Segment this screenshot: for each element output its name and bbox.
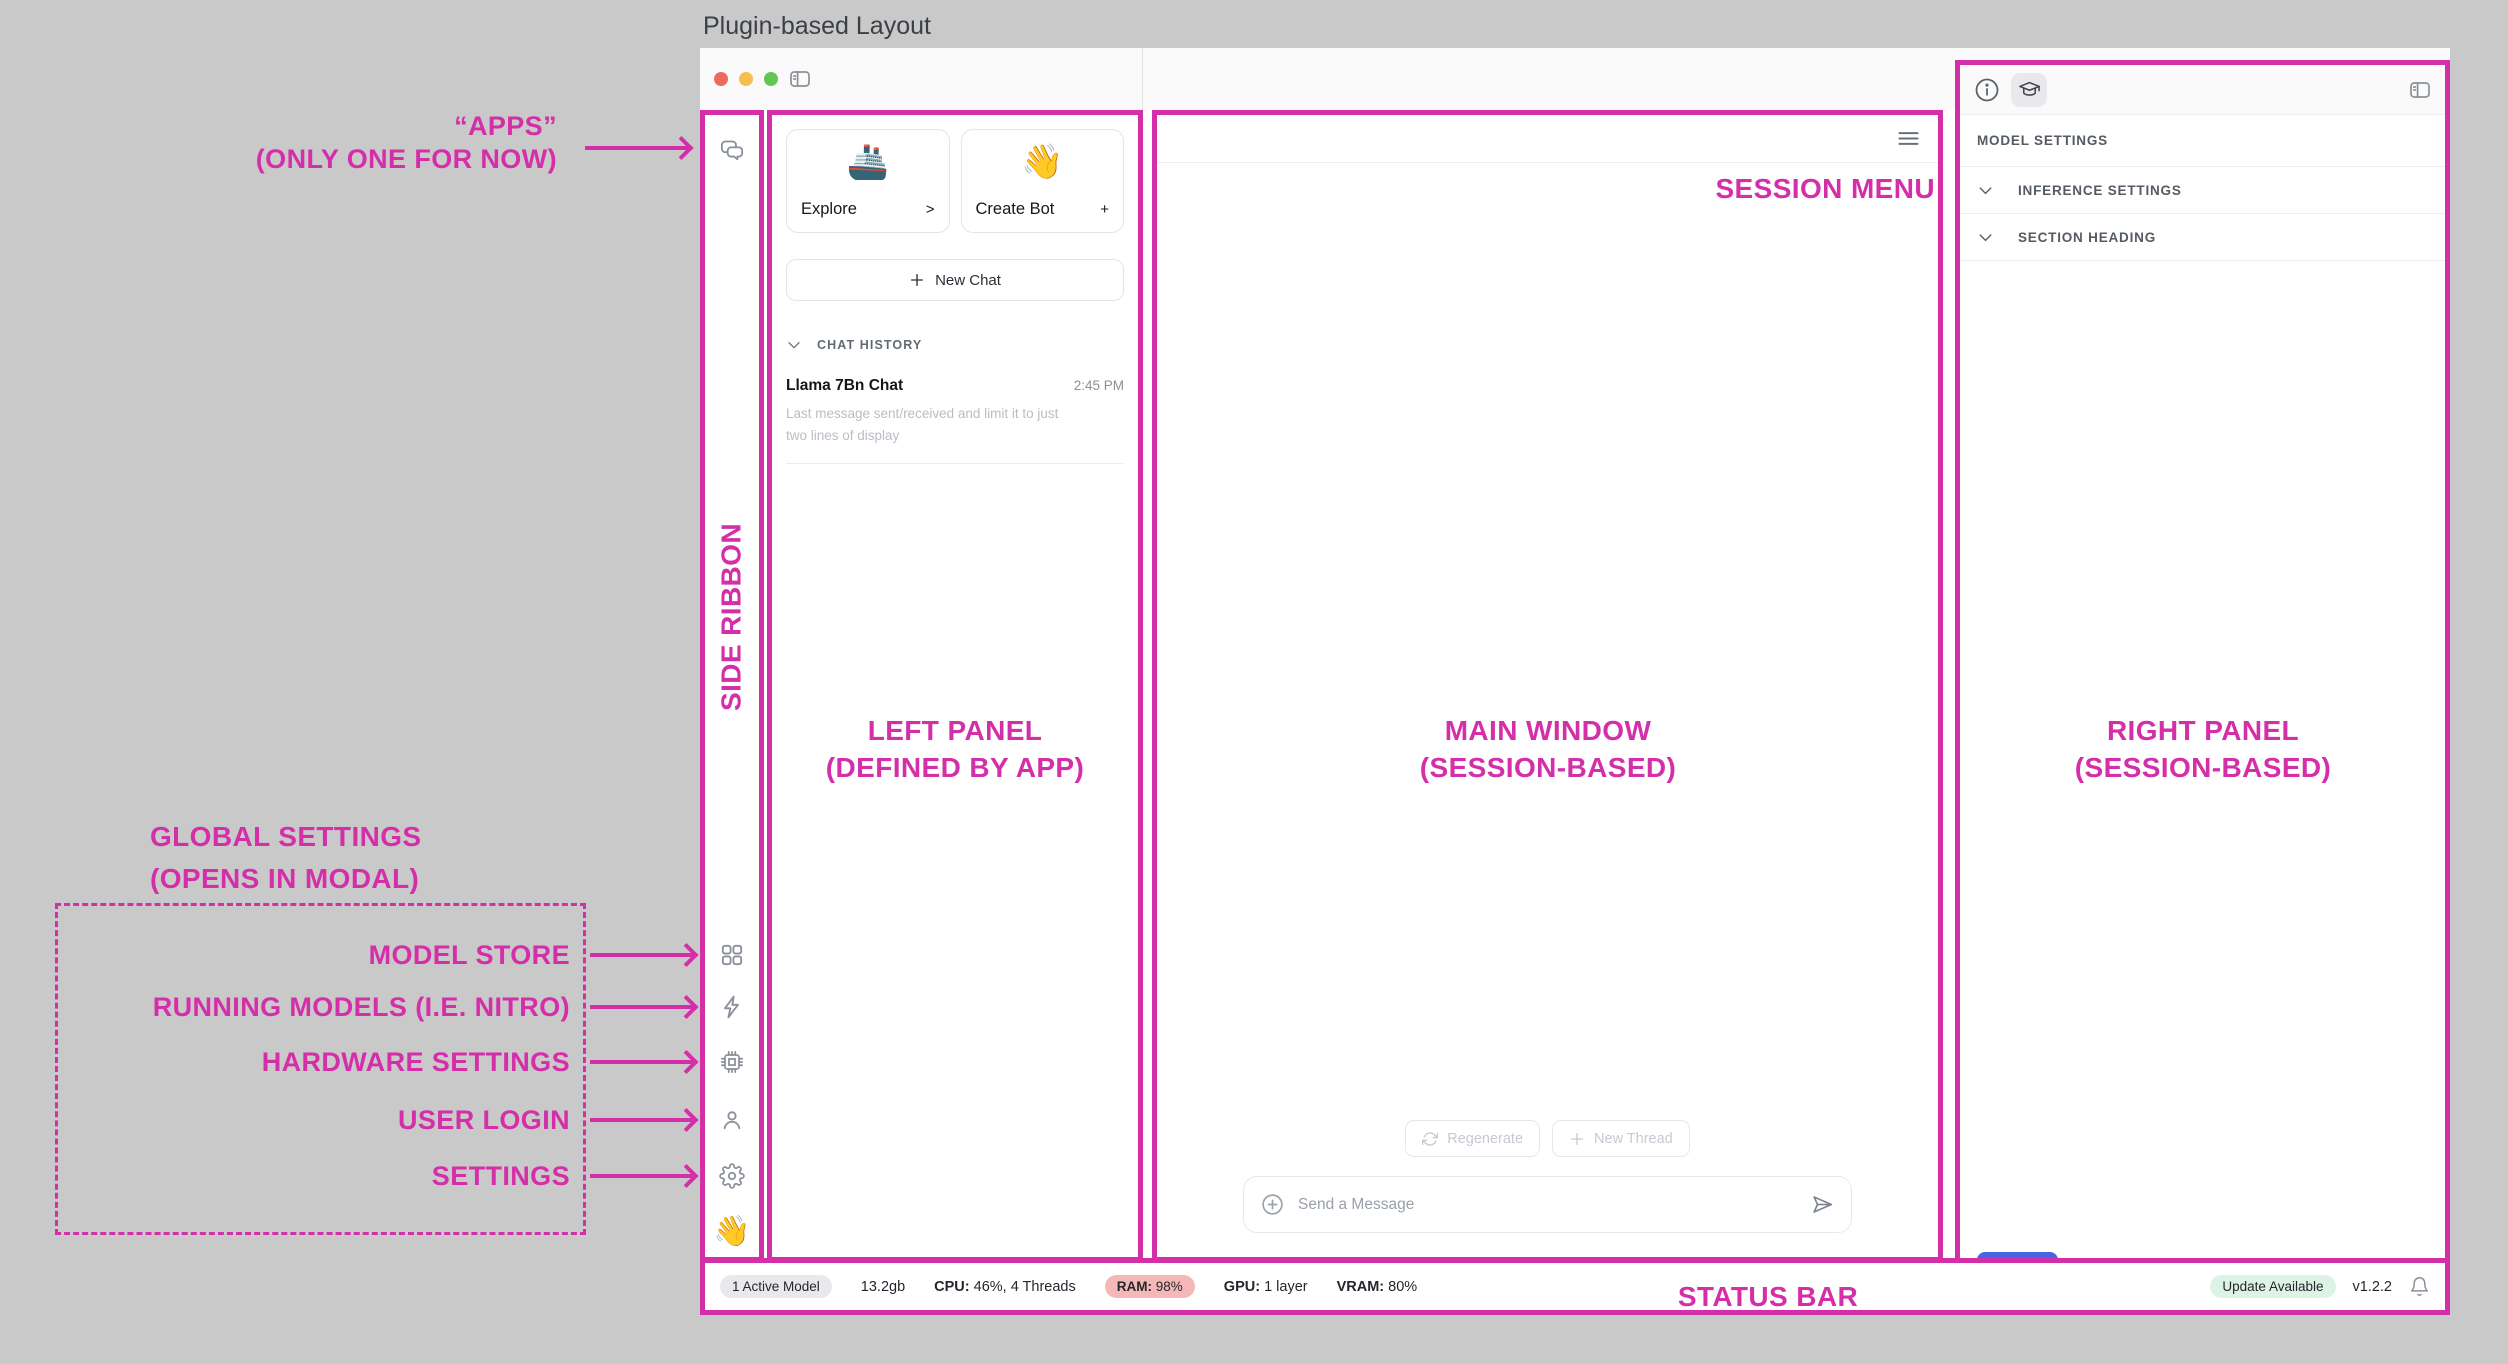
annotation-settings: SETTINGS: [0, 1160, 570, 1192]
message-input[interactable]: [1298, 1196, 1797, 1214]
model-settings-label: MODEL SETTINGS: [1977, 133, 2108, 148]
annotation-side-ribbon: SIDE RIBBON: [713, 523, 750, 711]
graduation-cap-icon: [2018, 78, 2041, 101]
ribbon-app-chat-button[interactable]: [719, 137, 746, 164]
chat-item-time: 2:45 PM: [1074, 378, 1124, 393]
annotation-arrow-settings: [590, 1174, 693, 1178]
new-chat-button[interactable]: New Chat: [786, 259, 1124, 301]
ribbon-running-models-button[interactable]: [719, 994, 745, 1020]
attach-button[interactable]: [1260, 1192, 1285, 1217]
memory-usage: 13.2gb: [861, 1279, 905, 1295]
ribbon-user-login-button[interactable]: [719, 1107, 745, 1133]
chat-item-preview-line1: Last message sent/received and limit it …: [786, 403, 1124, 425]
chevron-down-icon: [1977, 182, 1994, 199]
ram-badge: RAM: 98%: [1105, 1275, 1195, 1298]
info-tab-button[interactable]: [1973, 76, 2001, 104]
explore-card[interactable]: 🚢 Explore >: [786, 129, 950, 233]
notifications-button[interactable]: [2409, 1276, 2430, 1297]
annotation-hardware-settings: HARDWARE SETTINGS: [0, 1046, 570, 1078]
annotation-arrow-model-store: [590, 953, 693, 957]
vram-status: VRAM: 80%: [1337, 1279, 1418, 1295]
gpu-status: GPU: 1 layer: [1224, 1279, 1308, 1295]
bell-icon: [2409, 1276, 2430, 1297]
annotation-left-panel: LEFT PANEL (DEFINED BY APP): [826, 712, 1084, 786]
wave-emoji: 👋: [976, 142, 1110, 182]
model-settings-heading: MODEL SETTINGS: [1960, 115, 2445, 167]
ship-emoji: 🚢: [801, 142, 935, 182]
plus-glyph: +: [1100, 201, 1109, 218]
annotation-global-settings: GLOBAL SETTINGS (OPENS IN MODAL): [150, 816, 422, 900]
ribbon-hardware-settings-button[interactable]: [719, 1049, 745, 1075]
main-window: Regenerate New Thread: [1152, 110, 1943, 1262]
page-title: Plugin-based Layout: [703, 12, 931, 41]
annotation-arrow-apps: [585, 146, 688, 150]
chat-history-label: CHAT HISTORY: [817, 338, 922, 352]
chat-history-item[interactable]: Llama 7Bn Chat 2:45 PM Last message sent…: [786, 377, 1124, 464]
refresh-icon: [1422, 1131, 1438, 1147]
annotation-main-window: MAIN WINDOW (SESSION-BASED): [1420, 712, 1676, 786]
minimize-window-button[interactable]: [739, 72, 753, 86]
info-circle-icon: [1973, 76, 2001, 104]
sidebar-toggle-icon: [788, 67, 812, 91]
chip-icon: [719, 1049, 745, 1075]
new-chat-label: New Chat: [935, 272, 1001, 289]
section-heading-label: SECTION HEADING: [2018, 230, 2156, 245]
chat-item-preview-line2: two lines of display: [786, 425, 1124, 447]
right-panel-header: [1960, 65, 2445, 115]
chevron-down-icon: [786, 337, 802, 353]
left-panel: 🚢 Explore > 👋 Create Bot + New Chat: [767, 110, 1143, 1262]
gear-icon: [719, 1163, 745, 1189]
left-sidebar-toggle-button[interactable]: [788, 67, 812, 91]
titlebar-divider: [1142, 48, 1143, 110]
sidebar-toggle-icon: [2408, 78, 2432, 102]
ribbon-model-store-button[interactable]: [719, 942, 745, 968]
main-window-header: [1157, 115, 1938, 163]
annotation-apps: “APPS” (ONLY ONE FOR NOW): [256, 110, 557, 176]
annotation-running-models: RUNNING MODELS (I.E. NITRO): [0, 991, 570, 1023]
regenerate-button[interactable]: Regenerate: [1405, 1120, 1540, 1157]
inference-settings-section[interactable]: INFERENCE SETTINGS: [1960, 167, 2445, 214]
app-window: 👋 🚢 Explore > 👋 Create Bot +: [700, 48, 2450, 1315]
annotation-arrow-running-models: [590, 1005, 693, 1009]
new-thread-label: New Thread: [1594, 1131, 1673, 1147]
cpu-status: CPU: 46%, 4 Threads: [934, 1279, 1076, 1295]
plus-icon: [909, 272, 925, 288]
composer-area: Regenerate New Thread: [1157, 1120, 1938, 1257]
annotation-model-store: MODEL STORE: [0, 939, 570, 971]
right-panel: MODEL SETTINGS INFERENCE SETTINGS SECTIO…: [1955, 60, 2450, 1310]
session-menu-button[interactable]: [1895, 125, 1922, 152]
plus-icon: [1569, 1131, 1585, 1147]
send-icon: [1810, 1192, 1835, 1217]
lightning-icon: [719, 994, 745, 1020]
traffic-lights: [714, 72, 778, 86]
model-settings-tab-button[interactable]: [2011, 73, 2047, 107]
status-bar: 1 Active Model 13.2gb CPU: 46%, 4 Thread…: [700, 1258, 2450, 1315]
user-icon: [719, 1107, 745, 1133]
zoom-window-button[interactable]: [764, 72, 778, 86]
regenerate-label: Regenerate: [1447, 1131, 1523, 1147]
send-button[interactable]: [1810, 1192, 1835, 1217]
annotation-right-panel: RIGHT PANEL (SESSION-BASED): [2075, 712, 2331, 786]
hamburger-menu-icon: [1895, 125, 1922, 152]
annotation-user-login: USER LOGIN: [0, 1104, 570, 1136]
inference-settings-label: INFERENCE SETTINGS: [2018, 183, 2182, 198]
active-model-badge: 1 Active Model: [720, 1275, 832, 1298]
update-available-badge[interactable]: Update Available: [2210, 1275, 2335, 1298]
chevron-right-glyph: >: [926, 201, 935, 218]
chat-history-header[interactable]: CHAT HISTORY: [786, 337, 1124, 353]
circle-plus-icon: [1260, 1192, 1285, 1217]
message-bar: [1243, 1176, 1852, 1233]
annotation-session-menu: SESSION MENU: [1715, 170, 1935, 207]
grid-icon: [719, 942, 745, 968]
ribbon-settings-button[interactable]: [719, 1163, 745, 1189]
explore-card-label: Explore: [801, 200, 857, 219]
chat-bubbles-icon: [719, 137, 746, 164]
app-version: v1.2.2: [2353, 1279, 2393, 1295]
annotation-arrow-user-login: [590, 1118, 693, 1122]
create-bot-card-label: Create Bot: [976, 200, 1055, 219]
chevron-down-icon: [1977, 229, 1994, 246]
chat-item-title: Llama 7Bn Chat: [786, 377, 903, 395]
annotation-arrow-hardware-settings: [590, 1060, 693, 1064]
section-heading-section[interactable]: SECTION HEADING: [1960, 214, 2445, 261]
annotation-status-bar: STATUS BAR: [1678, 1278, 1858, 1315]
create-bot-card[interactable]: 👋 Create Bot +: [961, 129, 1125, 233]
close-window-button[interactable]: [714, 72, 728, 86]
right-sidebar-toggle-button[interactable]: [2408, 78, 2432, 102]
wave-emoji: 👋: [713, 1217, 750, 1247]
new-thread-button[interactable]: New Thread: [1552, 1120, 1690, 1157]
